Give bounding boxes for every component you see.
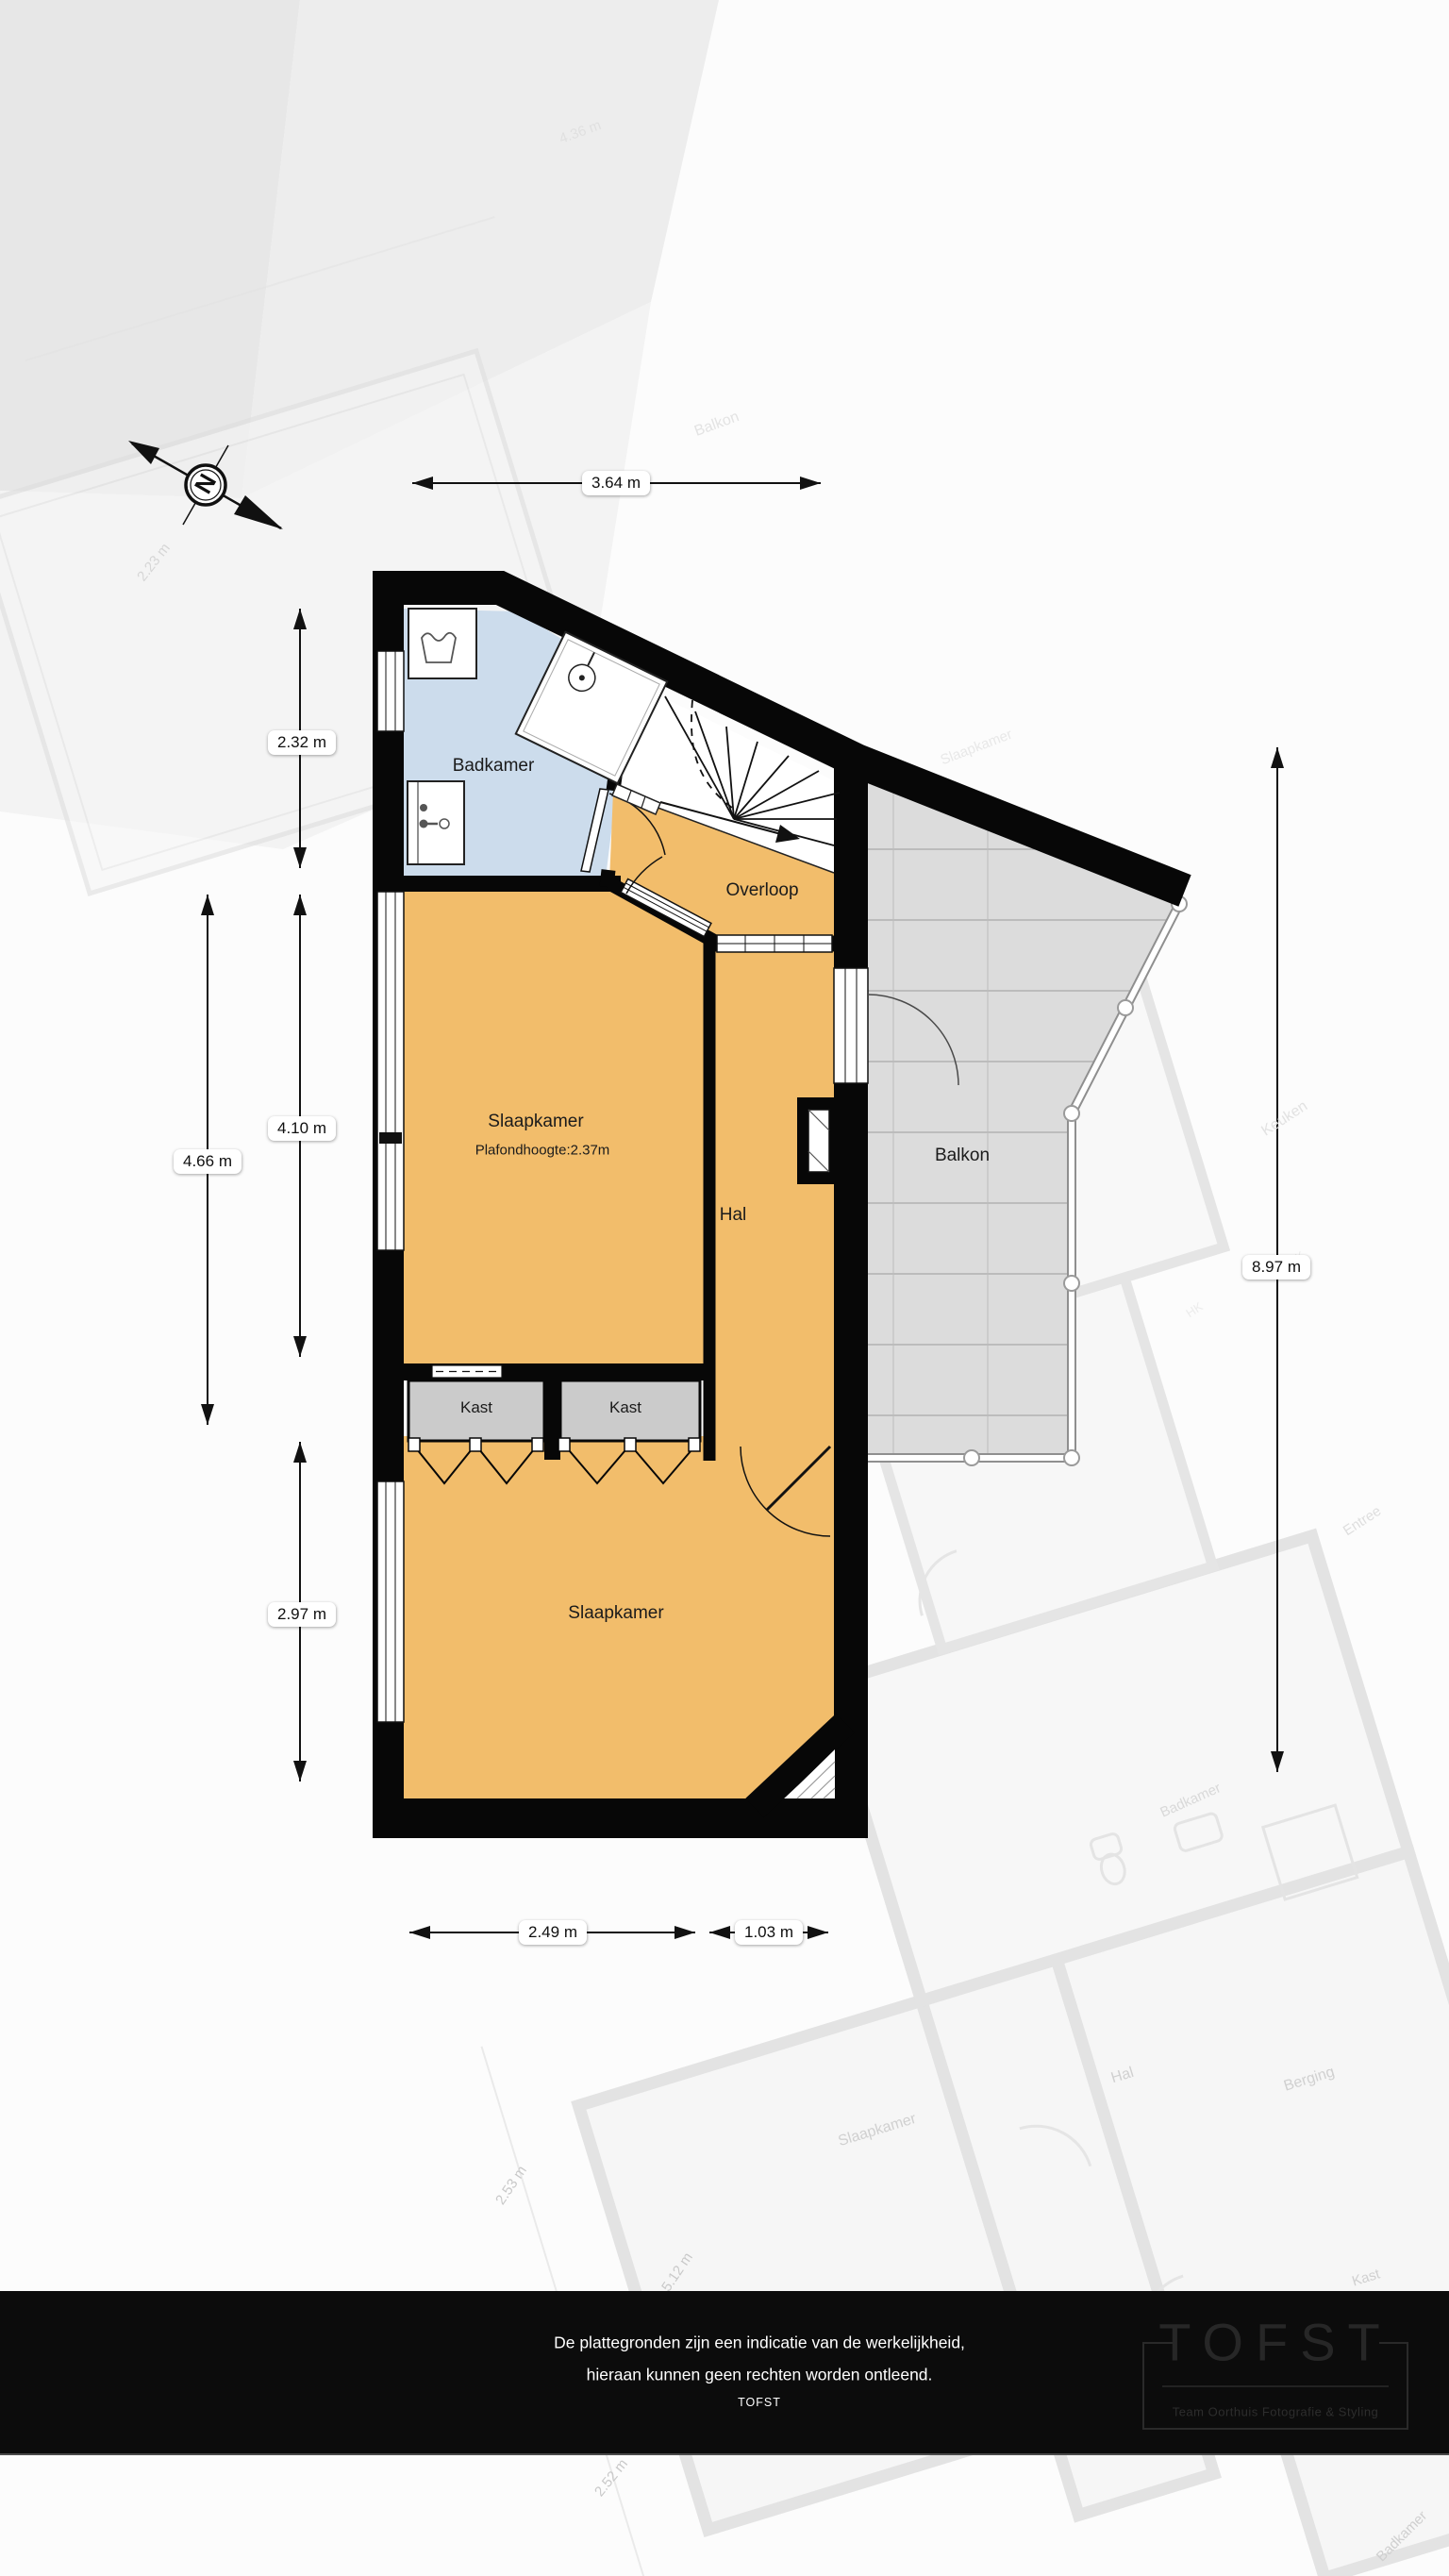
shaft-box [797,1097,863,1184]
floorplan-page: 4.36 m Balkon 2.23 m Slaapkamer Keuken H… [0,0,1449,2576]
tofst-logo-title: TOFST [1158,2312,1392,2373]
room-label-ceiling-height: Plafondhoogte:2.37m [475,1143,610,1159]
window-badkamer [377,651,404,731]
dim-label-left-lower: 2.97 m [268,1602,336,1627]
dim-label-left-middle: 4.10 m [268,1116,336,1141]
disclaimer-line-2: hieraan kunnen geen rechten worden ontle… [587,2366,933,2385]
window-slaapkamer-south [377,1481,404,1722]
dim-label-left-outer: 4.66 m [174,1149,241,1174]
disclaimer-brand: TOFST [738,2396,781,2409]
dim-label-top: 3.64 m [582,471,650,495]
sink-icon [408,781,464,864]
room-label-slaapkamer-south: Slaapkamer [568,1603,663,1624]
room-label-balkon: Balkon [935,1146,990,1166]
dim-label-right: 8.97 m [1242,1255,1310,1280]
window-slaapkamer-main [377,892,404,1250]
dim-label-bottom-left: 2.49 m [519,1920,587,1945]
dim-label-bottom-right: 1.03 m [735,1920,803,1945]
grille-kast [432,1365,502,1378]
washing-machine-icon [408,609,476,678]
dim-label-left-upper: 2.32 m [268,730,336,755]
room-label-overloop: Overloop [725,880,798,901]
window-overloop-balkon [717,935,832,952]
room-label-badkamer: Badkamer [453,756,535,777]
room-label-kast-right: Kast [609,1398,641,1417]
tofst-logo-subtitle: Team Oorthuis Fotografie & Styling [1173,2405,1379,2419]
floorplan-drawing [0,0,1449,2576]
room-label-slaapkamer-main: Slaapkamer [488,1112,583,1132]
disclaimer-line-1: De plattegronden zijn een indicatie van … [554,2333,965,2353]
room-label-hal: Hal [720,1205,747,1226]
room-label-kast-left: Kast [460,1398,492,1417]
